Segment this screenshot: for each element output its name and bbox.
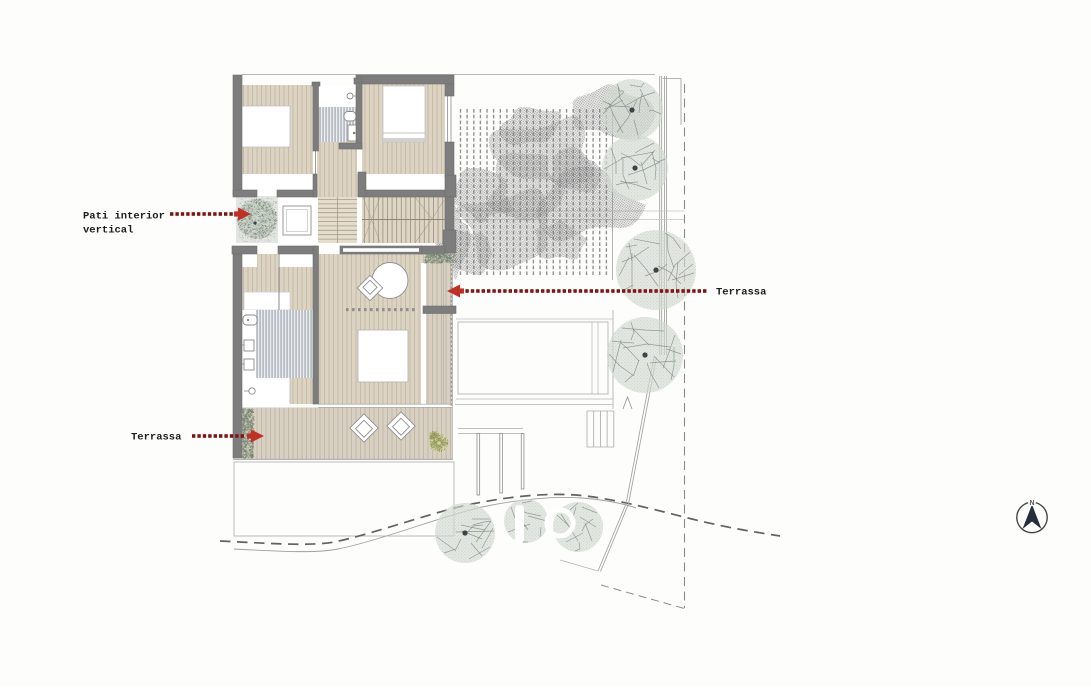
svg-text:Terrassa: Terrassa bbox=[716, 287, 767, 299]
svg-text:vertical: vertical bbox=[83, 225, 133, 237]
svg-text:Terrassa: Terrassa bbox=[131, 432, 182, 444]
svg-text:N: N bbox=[1029, 500, 1034, 507]
svg-text:Pati interior: Pati interior bbox=[83, 211, 165, 223]
